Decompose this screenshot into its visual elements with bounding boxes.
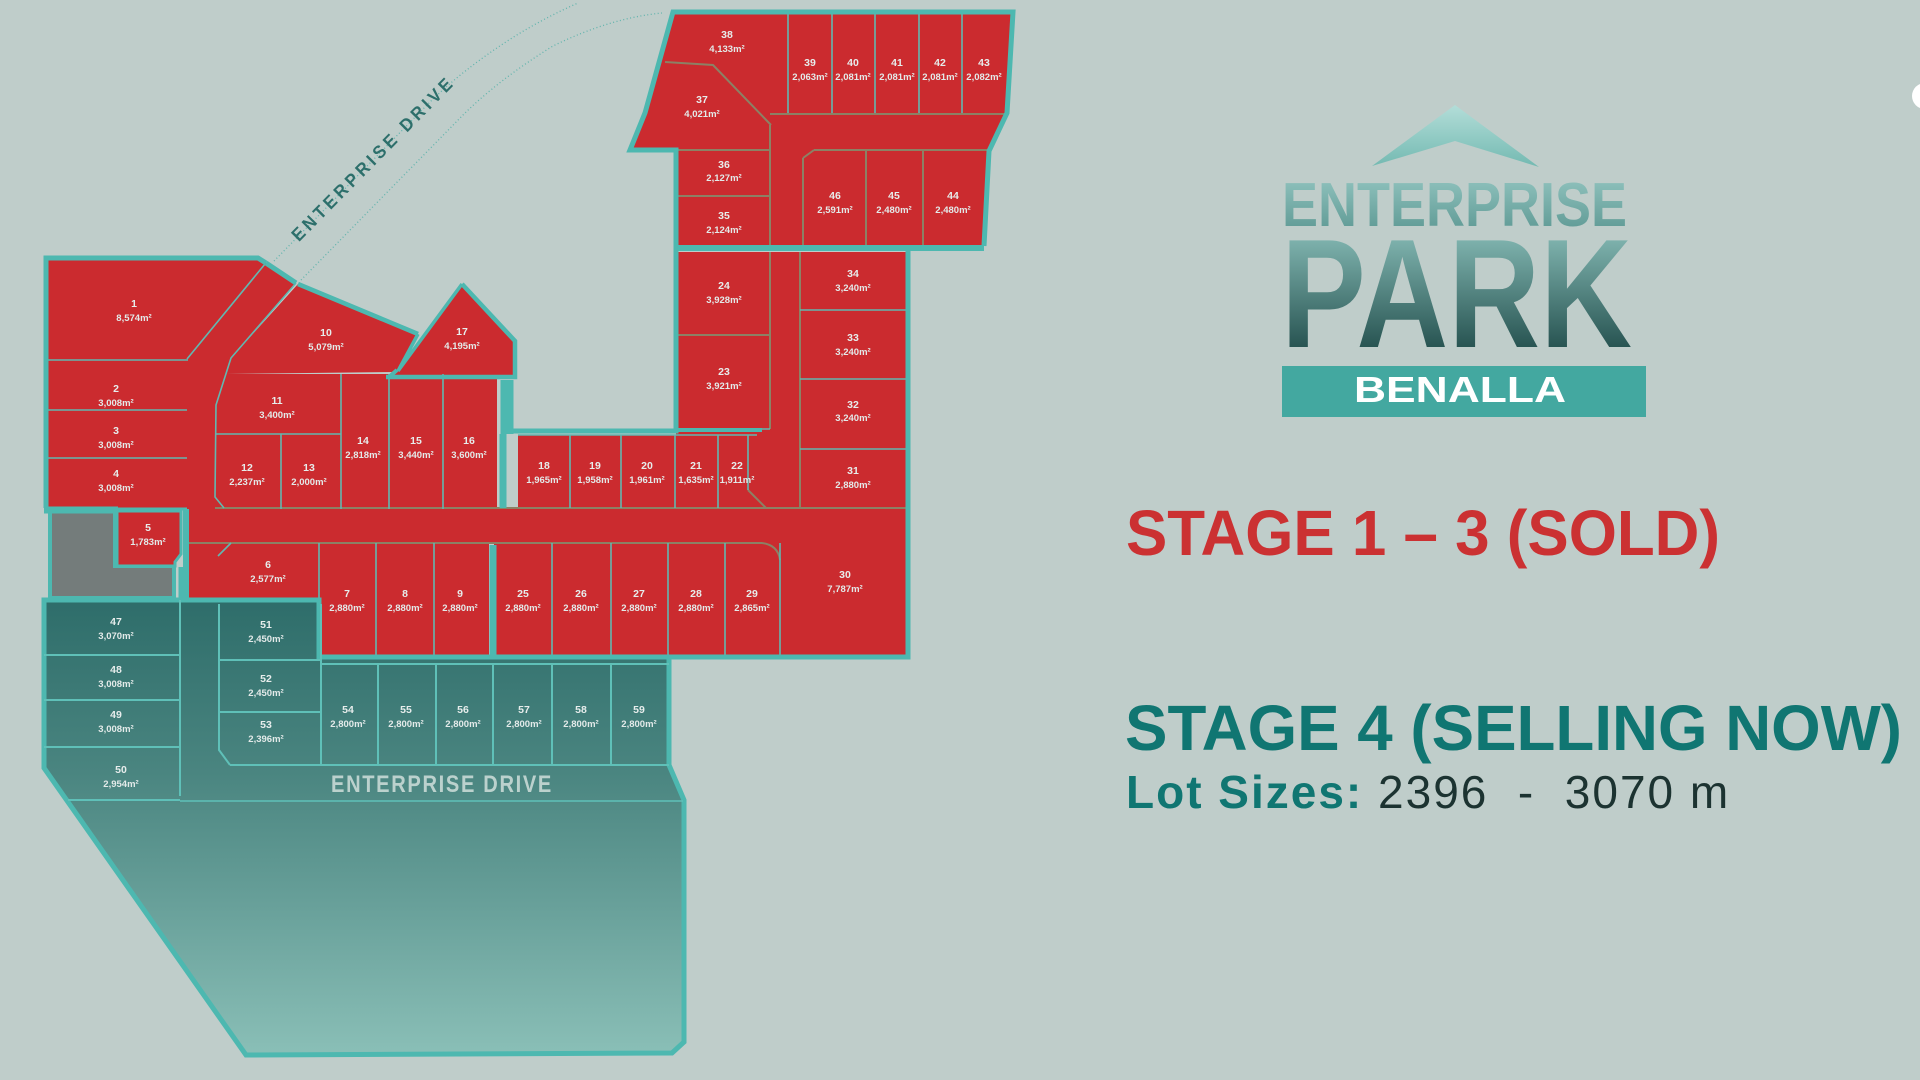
svg-text:2,081m²: 2,081m² [835,72,870,83]
svg-text:Lot Sizes: 2396 - 3070 m: Lot Sizes: 2396 - 3070 m [1126,766,1730,818]
svg-text:2,880m²: 2,880m² [505,603,540,614]
svg-text:3,070m²: 3,070m² [98,631,133,642]
svg-text:2,591m²: 2,591m² [817,205,852,216]
svg-text:2,063m²: 2,063m² [792,72,827,83]
svg-text:1,961m²: 1,961m² [629,475,664,486]
svg-text:54: 54 [342,704,354,716]
svg-text:59: 59 [633,704,645,716]
svg-text:2,396m²: 2,396m² [248,734,283,745]
svg-text:2,800m²: 2,800m² [563,719,598,730]
svg-text:33: 33 [847,332,859,344]
svg-text:41: 41 [891,57,903,69]
svg-text:55: 55 [400,704,412,716]
svg-text:2,450m²: 2,450m² [248,688,283,699]
svg-text:51: 51 [260,619,272,631]
svg-text:1,965m²: 1,965m² [526,475,561,486]
svg-text:2,800m²: 2,800m² [388,719,423,730]
svg-text:3,008m²: 3,008m² [98,440,133,451]
svg-text:4: 4 [113,468,119,480]
svg-text:44: 44 [947,190,959,202]
svg-text:3,008m²: 3,008m² [98,398,133,409]
svg-text:2,082m²: 2,082m² [966,72,1001,83]
svg-text:9: 9 [457,588,463,600]
svg-text:2,880m²: 2,880m² [329,603,364,614]
svg-text:32: 32 [847,399,859,411]
svg-text:35: 35 [718,210,730,222]
svg-text:56: 56 [457,704,469,716]
svg-text:2,800m²: 2,800m² [330,719,365,730]
svg-text:49: 49 [110,709,122,721]
svg-text:1,635m²: 1,635m² [678,475,713,486]
svg-text:15: 15 [410,435,422,447]
svg-text:STAGE 4 (SELLING NOW): STAGE 4 (SELLING NOW) [1125,692,1902,764]
svg-text:58: 58 [575,704,587,716]
svg-text:BENALLA: BENALLA [1354,369,1566,410]
svg-text:4,021m²: 4,021m² [684,109,719,120]
svg-text:2: 2 [113,383,119,395]
svg-text:45: 45 [888,190,900,202]
svg-text:48: 48 [110,664,122,676]
svg-text:5: 5 [145,522,151,534]
svg-text:2,954m²: 2,954m² [103,779,138,790]
svg-text:3,008m²: 3,008m² [98,483,133,494]
svg-text:26: 26 [575,588,587,600]
svg-text:31: 31 [847,465,859,477]
svg-text:1,911m²: 1,911m² [720,475,755,486]
svg-text:39: 39 [804,57,816,69]
svg-text:2,480m²: 2,480m² [935,205,970,216]
svg-text:3: 3 [113,425,119,437]
svg-text:12: 12 [241,462,253,474]
svg-text:42: 42 [934,57,946,69]
svg-text:23: 23 [718,366,730,378]
svg-text:2,124m²: 2,124m² [706,225,741,236]
svg-text:7: 7 [344,588,350,600]
svg-text:40: 40 [847,57,859,69]
svg-text:28: 28 [690,588,702,600]
svg-text:43: 43 [978,57,990,69]
svg-text:2,818m²: 2,818m² [345,450,380,461]
svg-text:2,800m²: 2,800m² [445,719,480,730]
svg-text:2,127m²: 2,127m² [706,173,741,184]
svg-text:STAGE 1 – 3 (SOLD): STAGE 1 – 3 (SOLD) [1126,497,1720,569]
svg-text:3,008m²: 3,008m² [98,679,133,690]
svg-text:2,577m²: 2,577m² [250,574,285,585]
svg-text:2,880m²: 2,880m² [442,603,477,614]
svg-text:3,921m²: 3,921m² [706,381,741,392]
svg-text:38: 38 [721,29,733,41]
svg-text:8,574m²: 8,574m² [116,313,151,324]
svg-text:7,787m²: 7,787m² [827,584,862,595]
svg-text:20: 20 [641,460,653,472]
svg-text:25: 25 [517,588,529,600]
svg-text:2,000m²: 2,000m² [291,477,326,488]
svg-text:2,880m²: 2,880m² [387,603,422,614]
svg-text:3,928m²: 3,928m² [706,295,741,306]
svg-text:21: 21 [690,460,702,472]
svg-text:30: 30 [839,569,851,581]
svg-text:ENTERPRISE DRIVE: ENTERPRISE DRIVE [331,771,553,798]
svg-text:3,440m²: 3,440m² [398,450,433,461]
svg-text:4,133m²: 4,133m² [709,44,744,55]
svg-text:2,880m²: 2,880m² [678,603,713,614]
svg-text:10: 10 [320,327,332,339]
svg-text:13: 13 [303,462,315,474]
svg-text:3,240m²: 3,240m² [835,413,870,424]
svg-text:17: 17 [456,326,468,338]
svg-text:29: 29 [746,588,758,600]
svg-text:ENTERPRISE DRIVE: ENTERPRISE DRIVE [288,72,460,246]
svg-text:2,880m²: 2,880m² [621,603,656,614]
svg-text:2,450m²: 2,450m² [248,634,283,645]
svg-text:16: 16 [463,435,475,447]
svg-text:2,865m²: 2,865m² [734,603,769,614]
svg-text:37: 37 [696,94,708,106]
svg-text:2,480m²: 2,480m² [876,205,911,216]
svg-text:22: 22 [731,460,743,472]
svg-text:24: 24 [718,280,730,292]
svg-text:2,880m²: 2,880m² [563,603,598,614]
svg-text:19: 19 [589,460,601,472]
svg-text:3,008m²: 3,008m² [98,724,133,735]
svg-text:11: 11 [271,395,282,407]
svg-text:2,800m²: 2,800m² [506,719,541,730]
svg-text:3,400m²: 3,400m² [259,410,294,421]
svg-text:4,195m²: 4,195m² [444,341,479,352]
svg-text:57: 57 [518,704,530,716]
svg-text:34: 34 [847,268,859,280]
svg-text:46: 46 [829,190,841,202]
svg-text:53: 53 [260,719,272,731]
svg-text:1,958m²: 1,958m² [577,475,612,486]
svg-text:50: 50 [115,764,127,776]
svg-text:2,081m²: 2,081m² [922,72,957,83]
svg-text:3,600m²: 3,600m² [451,450,486,461]
svg-text:36: 36 [718,159,730,171]
svg-text:2,081m²: 2,081m² [879,72,914,83]
svg-text:2,880m²: 2,880m² [835,480,870,491]
svg-text:47: 47 [110,616,122,628]
svg-text:3,240m²: 3,240m² [835,283,870,294]
svg-text:1,783m²: 1,783m² [130,537,165,548]
svg-text:8: 8 [402,588,408,600]
svg-text:18: 18 [538,460,550,472]
svg-text:6: 6 [265,559,271,571]
svg-text:2,800m²: 2,800m² [621,719,656,730]
svg-text:52: 52 [260,673,272,685]
svg-text:3,240m²: 3,240m² [835,347,870,358]
svg-text:PARK: PARK [1281,207,1632,380]
svg-text:5,079m²: 5,079m² [308,342,343,353]
svg-text:2,237m²: 2,237m² [229,477,264,488]
svg-text:27: 27 [633,588,645,600]
svg-text:1: 1 [131,298,137,310]
svg-text:14: 14 [357,435,369,447]
